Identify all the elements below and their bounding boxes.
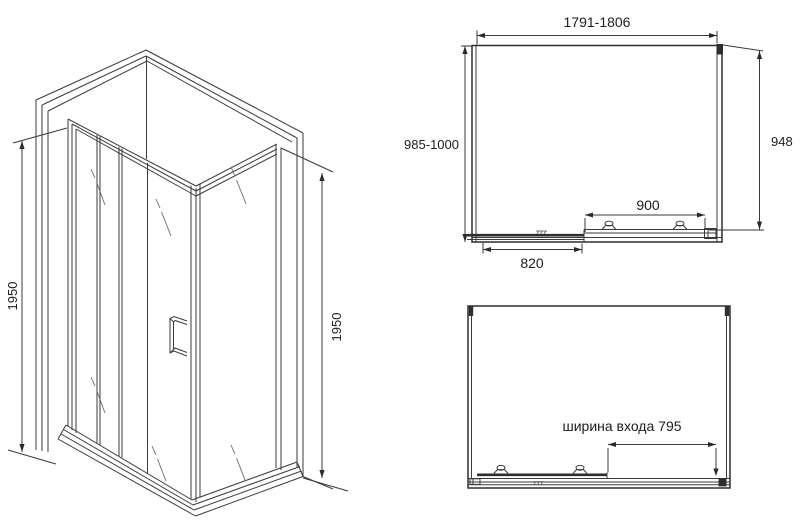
front-view-rail [467,221,716,242]
dimension-depth-left: 985-1000 [404,46,472,242]
dim-label-panel: 820 [520,255,544,271]
dim-label-1950-left: 1950 [5,282,20,311]
dim-label-1950-right: 1950 [329,313,344,342]
dimension-door-900: 900 [585,197,705,232]
dimension-width-top: 1791-1806 [477,14,717,45]
front-view-frame [472,44,723,242]
plan-view-frame [468,306,730,488]
plan-view-drawing: ширина входа 795 [440,285,800,522]
dimension-height-right: 1950 [281,148,348,491]
side-panel-frame [196,144,281,470]
roller-icon [494,465,508,473]
perspective-view-drawing: 1950 1950 [0,0,380,522]
rail-center-marking [536,231,547,234]
dim-label-door: 900 [636,197,660,213]
technical-drawing-canvas: 1950 1950 [0,0,800,522]
glass-shine-marks [91,167,246,481]
plan-view-sliding-door [477,465,607,478]
roller-icon [673,221,687,229]
sliding-door-dividers [97,135,122,458]
door-handle [170,317,187,357]
rail-center-marking [533,481,544,484]
dimension-panel-820: 820 [483,243,582,271]
dim-label-entrance: ширина входа 795 [562,418,681,434]
roller-icon [602,221,616,229]
roller-icon [573,465,587,473]
front-door-frame [68,119,200,502]
bottom-rail [58,425,303,516]
front-view-drawing: 1791-1806 985-1000 948 900 [395,0,800,280]
dim-label-side-right: 948 [771,134,793,149]
dimension-entrance-width: ширина входа 795 [562,418,718,476]
dim-label-depth-left: 985-1000 [404,137,459,152]
dim-label-width-top: 1791-1806 [564,14,631,30]
